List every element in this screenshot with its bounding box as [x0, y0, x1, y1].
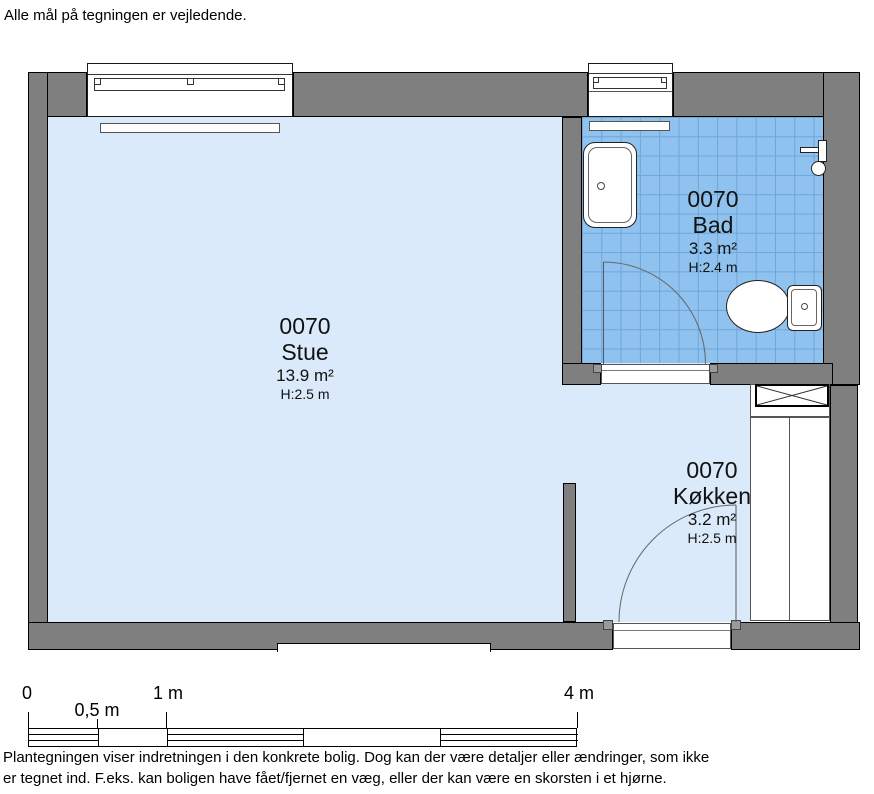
radiator-icon: [589, 121, 670, 131]
kitchen-counter: [750, 417, 790, 621]
window-frame-line: [88, 74, 292, 75]
shower-head: [811, 161, 826, 176]
door-jamb: [709, 364, 718, 373]
wall-right-upper: [823, 72, 860, 385]
window-mullion: [661, 77, 667, 83]
door-leaf-line: [602, 370, 709, 371]
window-mullion: [278, 78, 285, 85]
room-label-bad: 0070 Bad 3.3 m² H:2.4 m: [687, 187, 738, 276]
scale-bar: 0 0,5 m 1 m 4 m: [0, 675, 874, 750]
toilet-tank: [787, 285, 822, 331]
window-icon: [87, 63, 293, 117]
room-ceiling-height: H:2.5 m: [673, 530, 751, 547]
toilet-flush-button: [801, 303, 808, 310]
scale-tick: [97, 719, 98, 728]
scale-divider: [167, 729, 168, 746]
room-number: 0070: [276, 314, 334, 339]
kitchen-counter: [789, 417, 830, 621]
scale-label-1m: 1 m: [153, 683, 183, 704]
window-glazing-bar: [593, 77, 667, 89]
window-mullion: [187, 78, 194, 85]
radiator-icon: [100, 123, 280, 133]
room-ceiling-height: H:2.4 m: [687, 259, 738, 276]
room-area: 3.3 m²: [687, 238, 738, 259]
window-icon: [588, 63, 673, 117]
room-name: Bad: [687, 212, 738, 238]
wall-bath-bottom-right: [710, 363, 833, 385]
scale-divider: [303, 729, 304, 746]
room-ceiling-height: H:2.5 m: [276, 386, 334, 403]
sink-drain: [597, 182, 605, 190]
door-jamb: [603, 620, 613, 630]
footer-line-2: er tegnet ind. F.eks. kan boligen have f…: [3, 768, 871, 789]
door-jamb: [731, 620, 741, 630]
duct-shaft-x-icon: [755, 384, 829, 407]
wall-stub-kitchen: [563, 483, 576, 622]
scale-label-4m: 4 m: [564, 683, 594, 704]
scale-segment: [29, 729, 98, 746]
scale-tick: [577, 712, 578, 728]
scale-tick: [28, 712, 29, 728]
scale-divider: [98, 729, 99, 746]
wall-right-lower: [830, 385, 858, 650]
wall-bath-left: [562, 117, 582, 385]
wall-left: [28, 72, 48, 650]
scale-segment: [167, 729, 303, 746]
sink-icon: [583, 142, 637, 228]
room-name: Stue: [276, 339, 334, 365]
window-sill-line: [589, 91, 672, 92]
window-glazing-bar: [94, 78, 285, 91]
window-mullion: [94, 78, 101, 85]
scale-label-0-5m: 0,5 m: [74, 700, 119, 721]
toilet-icon: [726, 280, 790, 333]
room-area: 13.9 m²: [276, 365, 334, 386]
door-threshold-bath: [601, 364, 710, 384]
room-label-koekken: 0070 Køkken 3.2 m² H:2.5 m: [673, 458, 751, 547]
door-leaf-line: [614, 630, 730, 631]
footer-line-1: Plantegningen viser indretningen i den k…: [3, 747, 871, 768]
shower-valve: [818, 140, 827, 162]
footer-disclaimer: Plantegningen viser indretningen i den k…: [3, 747, 871, 789]
sink-basin: [588, 147, 632, 223]
scale-tick: [166, 712, 167, 728]
room-number: 0070: [673, 458, 751, 483]
scale-bar-rule: [28, 728, 577, 747]
door-jamb: [593, 364, 602, 373]
wall-bottom-step: [277, 643, 491, 652]
window-mullion: [593, 77, 599, 83]
door-threshold-entrance: [613, 623, 731, 649]
room-label-stue: 0070 Stue 13.9 m² H:2.5 m: [276, 314, 334, 403]
wall-bottom-right: [731, 622, 860, 650]
scale-segment: [440, 729, 578, 746]
wall-top-middle: [293, 72, 588, 117]
room-name: Køkken: [673, 483, 751, 509]
window-frame-line: [589, 73, 672, 74]
scale-label-0: 0: [22, 683, 32, 704]
room-area: 3.2 m²: [673, 509, 751, 530]
room-number: 0070: [687, 187, 738, 212]
scale-divider: [440, 729, 441, 746]
